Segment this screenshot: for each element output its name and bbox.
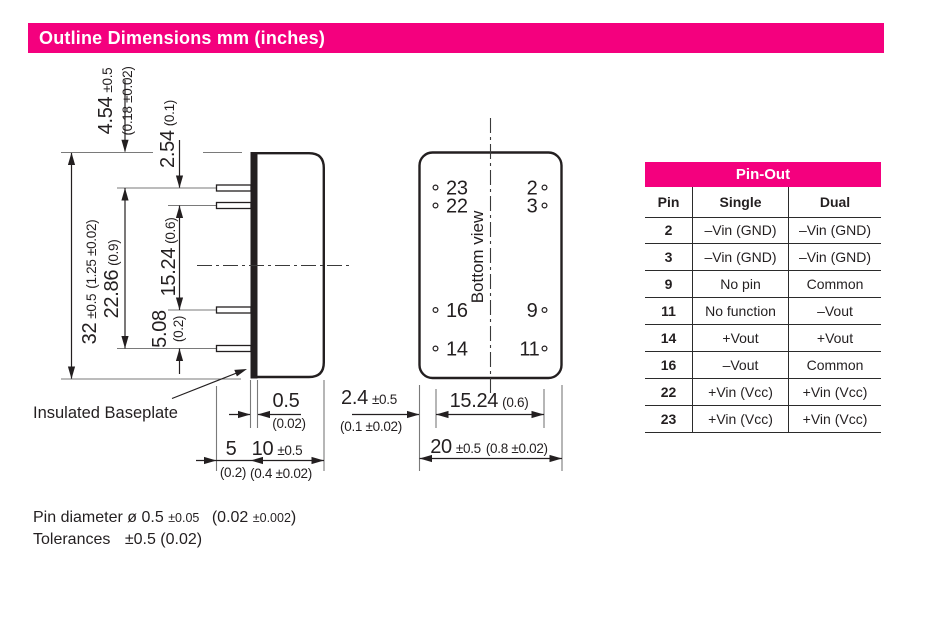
table-row: 14+Vout+Vout — [645, 325, 881, 352]
cell-dual: +Vout — [789, 325, 882, 352]
arrowhead — [550, 455, 563, 462]
pin-number: 9 — [527, 300, 538, 322]
column-header-dual: Dual — [789, 187, 882, 217]
cell-pin: 22 — [645, 378, 693, 405]
pinout-title: Pin-Out — [645, 162, 881, 187]
dim-label-454: 4.54±0.5(0.18 ±0.02) — [95, 66, 135, 135]
pin-number: 22 — [446, 196, 468, 218]
cell-single: +Vin (Vcc) — [693, 405, 789, 432]
side-view-labels: 4.54±0.5(0.18 ±0.02) 2.54(0.1) 32±0.5(1.… — [33, 66, 312, 481]
arrowhead — [176, 176, 183, 189]
dim-label-24: 2.4±0.5 — [341, 387, 397, 409]
cell-pin: 23 — [645, 405, 693, 432]
arrowhead — [176, 349, 183, 362]
side-view — [197, 152, 351, 379]
dim-label-254: 2.54(0.1) — [157, 100, 179, 168]
dim-label-24-inch: (0.1 ±0.02) — [340, 419, 402, 434]
bottom-view-dimensions: 2.4±0.5 (0.1 ±0.02) 15.24(0.6) 20±0.5(0.… — [340, 387, 562, 462]
pin-number: 11 — [519, 339, 539, 361]
pin-hole — [542, 203, 547, 208]
dim-label-1524b: 15.24(0.6) — [450, 390, 529, 412]
pinout-table: Pin Single Dual 2–Vin (GND)–Vin (GND) 3–… — [645, 187, 881, 433]
cell-single: No pin — [693, 271, 789, 298]
dim-label-2286: 22.86(0.9) — [101, 240, 123, 319]
dim-label-05-inch: (0.02) — [272, 416, 305, 431]
table-header-row: Pin Single Dual — [645, 187, 881, 217]
pin-lead — [217, 185, 252, 191]
baseplate-label: Insulated Baseplate — [33, 404, 178, 422]
table-row: 2–Vin (GND)–Vin (GND) — [645, 217, 881, 244]
footnotes: Pin diameter ø 0.5 ±0.05 (0.02 ±0.002) T… — [33, 507, 296, 551]
cell-single: +Vout — [693, 325, 789, 352]
pin-hole — [433, 346, 438, 351]
cell-dual: +Vin (Vcc) — [789, 405, 882, 432]
arrowhead — [312, 457, 325, 464]
pin-hole — [433, 203, 438, 208]
arrowhead — [532, 411, 545, 418]
cell-dual: –Vin (GND) — [789, 217, 882, 244]
datasheet-page: { "colors": { "accent": "#F4007E", "ink"… — [0, 0, 925, 618]
pin-diameter-text: Pin diameter ø 0.5 — [33, 509, 164, 526]
column-header-single: Single — [693, 187, 789, 217]
pin-number: 3 — [527, 196, 538, 218]
arrowhead — [436, 411, 449, 418]
cell-dual: +Vin (Vcc) — [789, 378, 882, 405]
dim-label-5-inch: (0.2) — [220, 465, 246, 480]
table-row: 22+Vin (Vcc)+Vin (Vcc) — [645, 378, 881, 405]
tolerances-value: ±0.5 (0.02) — [125, 531, 202, 548]
cell-single: –Vout — [693, 351, 789, 378]
tolerances-note: Tolerances ±0.5 (0.02) — [33, 529, 296, 551]
pin-hole — [542, 346, 547, 351]
pin-hole — [433, 185, 438, 190]
pin-lead — [217, 307, 252, 313]
cell-pin: 16 — [645, 351, 693, 378]
leader-line — [172, 371, 243, 399]
pin-diameter-inches-close: ) — [291, 509, 296, 526]
cell-dual: –Vout — [789, 298, 882, 325]
dim-label-05: 0.5 — [273, 390, 300, 412]
pin-lead — [217, 203, 252, 209]
arrowhead — [176, 298, 183, 311]
cell-pin: 14 — [645, 325, 693, 352]
arrowhead — [68, 153, 75, 166]
extension-lines — [61, 153, 562, 472]
arrowhead — [121, 140, 128, 153]
arrowhead — [238, 411, 251, 418]
pin-hole — [433, 308, 438, 313]
pin-diameter-tolerance: ±0.05 — [168, 511, 199, 525]
arrowhead — [204, 457, 217, 464]
bottom-view-label: Bottom view — [468, 210, 487, 303]
table-row: 9No pinCommon — [645, 271, 881, 298]
arrowhead — [121, 188, 128, 201]
cell-pin: 11 — [645, 298, 693, 325]
cell-single: No function — [693, 298, 789, 325]
cell-single: –Vin (GND) — [693, 217, 789, 244]
dim-label-1524: 15.24(0.6) — [158, 218, 180, 297]
arrowhead — [68, 367, 75, 380]
cell-pin: 3 — [645, 244, 693, 271]
pin-number: 14 — [446, 339, 468, 361]
table-row: 3–Vin (GND)–Vin (GND) — [645, 244, 881, 271]
pin-diameter-inches: (0.02 — [212, 509, 248, 526]
pin-hole — [542, 308, 547, 313]
dim-label-508: 5.08(0.2) — [149, 310, 186, 348]
dim-label-10-inch: (0.4 ±0.02) — [250, 466, 312, 481]
dim-label-20: 20±0.5(0.8 ±0.02) — [430, 436, 548, 458]
bottom-view: Bottom view 23 22 16 14 2 3 9 11 — [420, 118, 562, 394]
cell-single: +Vin (Vcc) — [693, 378, 789, 405]
pinout-panel: Pin-Out Pin Single Dual 2–Vin (GND)–Vin … — [645, 162, 881, 433]
tolerances-label: Tolerances — [33, 531, 110, 548]
pin-lead — [217, 346, 252, 352]
cell-single: –Vin (GND) — [693, 244, 789, 271]
pin-diameter-note: Pin diameter ø 0.5 ±0.05 (0.02 ±0.002) — [33, 507, 296, 529]
dim-label-32: 32±0.5(1.25 ±0.02) — [79, 220, 101, 345]
pin-number: 16 — [446, 300, 468, 322]
arrowhead — [258, 411, 271, 418]
cell-dual: –Vin (GND) — [789, 244, 882, 271]
arrowhead — [176, 206, 183, 219]
arrowhead — [121, 336, 128, 349]
dim-label-10: 10±0.5 — [252, 438, 303, 460]
cell-pin: 9 — [645, 271, 693, 298]
cell-pin: 2 — [645, 217, 693, 244]
arrowhead — [407, 411, 420, 418]
table-row: 16–VoutCommon — [645, 351, 881, 378]
cell-dual: Common — [789, 271, 882, 298]
pin-diameter-inches-tolerance: ±0.002 — [253, 511, 291, 525]
pin-hole — [542, 185, 547, 190]
dim-label-5: 5 — [226, 438, 237, 460]
table-row: 23+Vin (Vcc)+Vin (Vcc) — [645, 405, 881, 432]
cell-dual: Common — [789, 351, 882, 378]
column-header-pin: Pin — [645, 187, 693, 217]
bottom-view-outline — [420, 153, 562, 379]
table-row: 11No function–Vout — [645, 298, 881, 325]
arrowhead — [234, 369, 247, 376]
